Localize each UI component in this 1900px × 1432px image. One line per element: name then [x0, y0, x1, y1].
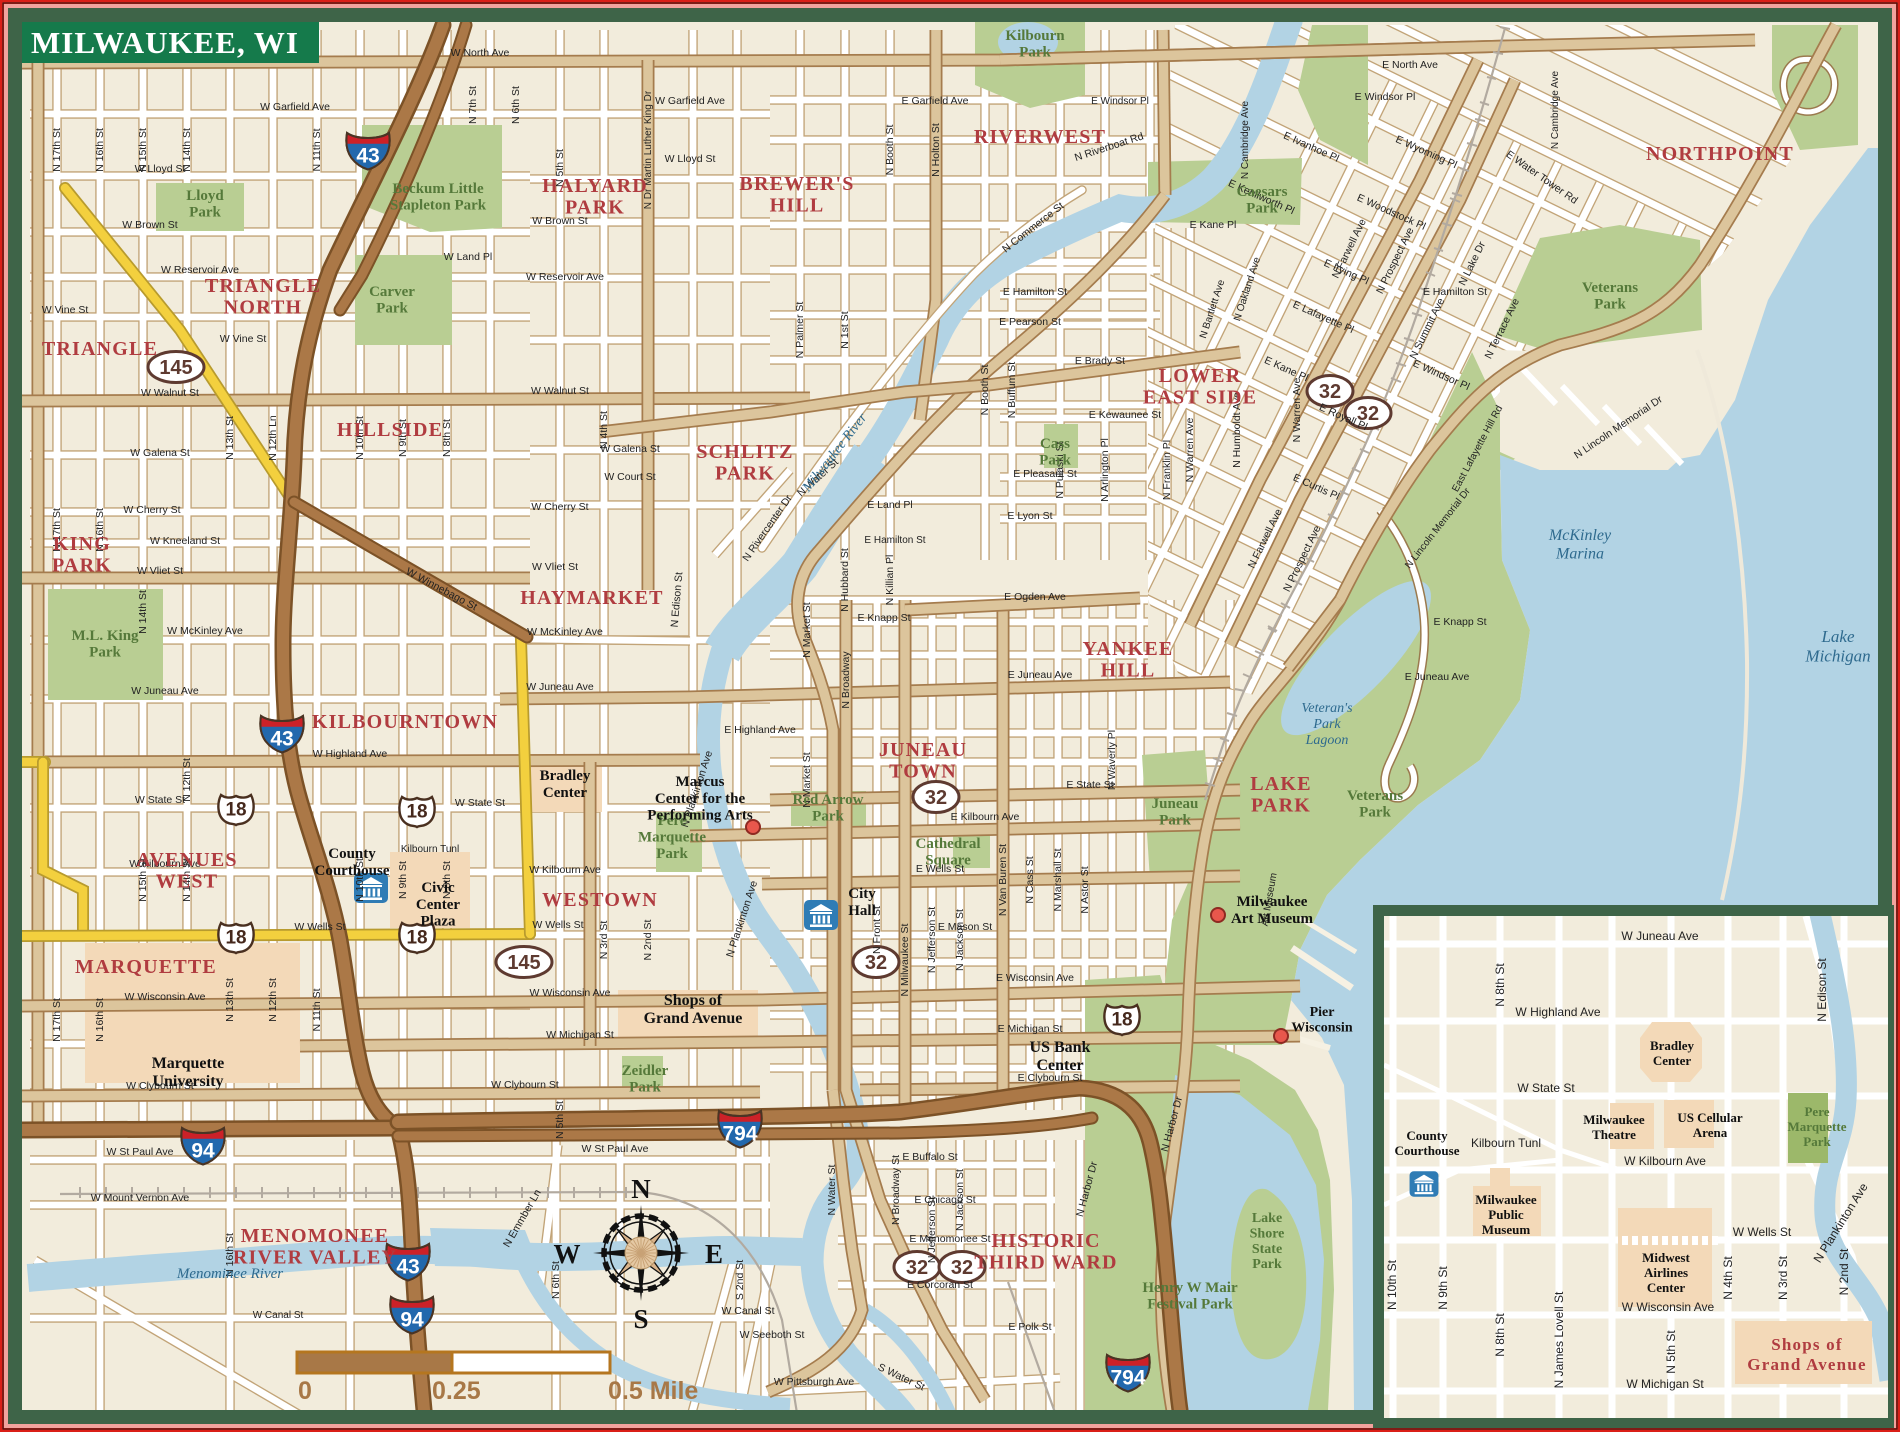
svg-text:NORTH: NORTH	[224, 297, 303, 319]
svg-text:Park: Park	[1359, 805, 1391, 821]
svg-text:W Kilbourn Ave: W Kilbourn Ave	[1624, 1154, 1706, 1168]
svg-text:N 9th St: N 9th St	[1436, 1266, 1450, 1310]
svg-text:N Edison St: N Edison St	[1815, 958, 1829, 1022]
svg-text:W Galena St: W Galena St	[130, 447, 190, 459]
svg-text:E Chicago St: E Chicago St	[914, 1194, 975, 1206]
svg-text:N 8th St: N 8th St	[1493, 963, 1507, 1007]
svg-text:E Ogden Ave: E Ogden Ave	[1004, 591, 1066, 603]
svg-text:N 12th Ln: N 12th Ln	[267, 415, 279, 461]
svg-text:E Windsor Pl: E Windsor Pl	[1355, 91, 1416, 103]
svg-text:145: 145	[159, 357, 192, 379]
svg-text:18: 18	[406, 802, 427, 823]
svg-text:32: 32	[865, 952, 887, 974]
svg-text:Plaza: Plaza	[421, 914, 456, 930]
svg-text:N 11th St: N 11th St	[311, 128, 323, 171]
svg-text:43: 43	[356, 145, 379, 168]
svg-text:E Wisconsin Ave: E Wisconsin Ave	[996, 972, 1074, 984]
svg-text:W Pittsburgh Ave: W Pittsburgh Ave	[774, 1376, 855, 1388]
svg-text:E Hamilton St: E Hamilton St	[864, 535, 925, 546]
svg-text:E Hamilton St: E Hamilton St	[1003, 286, 1067, 298]
svg-text:Milwaukee: Milwaukee	[1475, 1192, 1537, 1207]
svg-text:W State St: W State St	[1517, 1081, 1575, 1095]
svg-text:W Wisconsin Ave: W Wisconsin Ave	[125, 991, 206, 1003]
svg-text:S: S	[633, 1304, 648, 1334]
svg-text:43: 43	[396, 1256, 419, 1279]
svg-text:M.L. King: M.L. King	[71, 628, 139, 644]
svg-text:Park: Park	[1594, 297, 1626, 313]
svg-text:Milwaukee: Milwaukee	[1583, 1112, 1645, 1127]
svg-text:94: 94	[191, 1140, 215, 1163]
svg-text:N Marshall St: N Marshall St	[1052, 848, 1064, 911]
svg-text:W Wells St: W Wells St	[532, 919, 583, 931]
svg-text:W Wells St: W Wells St	[294, 921, 345, 933]
svg-text:W Cherry St: W Cherry St	[123, 504, 180, 516]
svg-text:E Knapp St: E Knapp St	[857, 612, 910, 624]
svg-text:N Jefferson St: N Jefferson St	[926, 907, 938, 973]
svg-text:Shops of: Shops of	[664, 992, 723, 1009]
svg-text:Menominee River: Menominee River	[176, 1266, 283, 1282]
svg-text:HILLSIDE: HILLSIDE	[337, 419, 443, 441]
svg-text:E Windsor Pl: E Windsor Pl	[1091, 96, 1149, 107]
svg-text:Michigan: Michigan	[1804, 647, 1870, 666]
svg-text:N Cass St: N Cass St	[1024, 856, 1036, 903]
svg-text:E Knapp St: E Knapp St	[1433, 616, 1486, 628]
svg-text:N 9th St: N 9th St	[397, 861, 409, 899]
svg-text:Marquette: Marquette	[152, 1055, 225, 1072]
svg-text:E Brady St: E Brady St	[1075, 355, 1125, 367]
svg-text:NORTHPOINT: NORTHPOINT	[1646, 143, 1794, 165]
svg-text:Museum: Museum	[1482, 1222, 1531, 1237]
svg-text:HAYMARKET: HAYMARKET	[520, 587, 663, 609]
svg-text:N Van Buren St: N Van Buren St	[997, 844, 1009, 916]
svg-text:794: 794	[722, 1123, 757, 1146]
svg-text:Festival Park: Festival Park	[1147, 1297, 1233, 1313]
svg-text:E Buffalo St: E Buffalo St	[902, 1151, 957, 1163]
svg-text:Caesars: Caesars	[1237, 184, 1288, 200]
svg-text:E Kilbourn Ave: E Kilbourn Ave	[951, 811, 1020, 823]
svg-text:W Highland Ave: W Highland Ave	[313, 748, 388, 760]
svg-text:TOWN: TOWN	[889, 761, 957, 783]
svg-text:W State St: W State St	[455, 797, 505, 809]
svg-text:WEST: WEST	[156, 871, 219, 893]
svg-text:W St Paul Ave: W St Paul Ave	[582, 1143, 649, 1155]
svg-text:E Kane Pl: E Kane Pl	[1190, 219, 1237, 231]
svg-text:Park: Park	[1246, 201, 1278, 217]
svg-text:N 4th St: N 4th St	[1721, 1256, 1735, 1300]
svg-text:18: 18	[225, 800, 246, 821]
svg-text:E Land Pl: E Land Pl	[867, 499, 913, 511]
svg-text:N Cambridge Ave: N Cambridge Ave	[1240, 100, 1251, 179]
svg-text:E North Ave: E North Ave	[1382, 59, 1438, 71]
svg-text:Bradley: Bradley	[540, 768, 591, 784]
svg-text:E Pleasant St: E Pleasant St	[1013, 468, 1077, 480]
svg-text:KILBOURNTOWN: KILBOURNTOWN	[312, 711, 498, 733]
svg-text:N Holton St: N Holton St	[930, 123, 942, 177]
svg-text:McKinley: McKinley	[1548, 527, 1612, 544]
svg-text:Park: Park	[1039, 453, 1071, 469]
svg-text:PARK: PARK	[715, 463, 775, 485]
svg-text:N Hubbard St: N Hubbard St	[839, 548, 851, 612]
svg-text:E Polk St: E Polk St	[1008, 1321, 1051, 1333]
svg-text:N 10th St: N 10th St	[1385, 1259, 1399, 1310]
svg-text:Pere: Pere	[1804, 1104, 1829, 1119]
svg-text:RIVERWEST: RIVERWEST	[974, 126, 1106, 148]
svg-text:W Cherry St: W Cherry St	[531, 501, 588, 513]
svg-text:N 15th St: N 15th St	[137, 128, 149, 172]
svg-text:145: 145	[507, 952, 540, 974]
svg-text:18: 18	[406, 928, 427, 949]
svg-text:W Kneeland St: W Kneeland St	[150, 535, 220, 547]
svg-text:W St Paul Ave: W St Paul Ave	[107, 1146, 174, 1158]
svg-text:94: 94	[400, 1309, 424, 1332]
svg-text:W Juneau Ave: W Juneau Ave	[1621, 929, 1698, 943]
svg-text:Park: Park	[1019, 45, 1051, 61]
svg-text:N 8th St: N 8th St	[1493, 1313, 1507, 1357]
svg-text:N 5th St: N 5th St	[1664, 1330, 1678, 1374]
svg-text:N 14th St: N 14th St	[137, 590, 149, 634]
svg-text:Park: Park	[812, 809, 844, 825]
svg-text:Park: Park	[189, 205, 221, 221]
svg-text:W Kilbourn Ave: W Kilbourn Ave	[529, 864, 601, 876]
svg-text:N 3rd St: N 3rd St	[1776, 1255, 1790, 1300]
svg-text:32: 32	[906, 1257, 928, 1279]
svg-text:Park: Park	[1252, 1257, 1282, 1272]
svg-text:Lake: Lake	[1252, 1211, 1282, 1226]
svg-text:PARK: PARK	[52, 555, 112, 577]
svg-text:HALYARD: HALYARD	[542, 175, 648, 197]
svg-text:N 13th St: N 13th St	[224, 978, 236, 1022]
svg-text:E Garfield Ave: E Garfield Ave	[902, 95, 969, 107]
svg-text:N Arlington Pl: N Arlington Pl	[1099, 438, 1111, 502]
svg-text:Lagoon: Lagoon	[1305, 733, 1349, 748]
svg-text:N Warren Ave: N Warren Ave	[1291, 377, 1303, 442]
svg-text:N 13th St: N 13th St	[224, 416, 236, 460]
svg-text:KING: KING	[53, 533, 111, 555]
svg-text:Park: Park	[1159, 813, 1191, 829]
svg-text:N Buffum St: N Buffum St	[1006, 362, 1018, 418]
svg-text:W Clybourn St: W Clybourn St	[491, 1079, 559, 1091]
svg-text:Veteran's: Veteran's	[1301, 701, 1353, 716]
svg-text:Airlines: Airlines	[1644, 1265, 1688, 1280]
svg-text:Square: Square	[925, 853, 971, 869]
svg-text:N 2nd St: N 2nd St	[642, 919, 654, 960]
svg-text:Park: Park	[1803, 1134, 1831, 1149]
svg-text:YANKEE: YANKEE	[1083, 638, 1174, 660]
svg-text:N 5th St: N 5th St	[554, 1101, 566, 1139]
svg-text:0.5 Mile: 0.5 Mile	[608, 1377, 698, 1405]
svg-text:W Canal St: W Canal St	[253, 1310, 304, 1321]
svg-text:N 16th St: N 16th St	[94, 128, 106, 172]
svg-text:W Walnut St: W Walnut St	[531, 385, 589, 397]
svg-text:W Juneau Ave: W Juneau Ave	[131, 685, 199, 697]
svg-text:City: City	[848, 886, 876, 902]
svg-text:HILL: HILL	[770, 195, 825, 217]
svg-text:Kilbourn Tunl: Kilbourn Tunl	[1471, 1136, 1541, 1150]
svg-text:N 11th St: N 11th St	[311, 988, 323, 1031]
svg-text:MENOMONEE: MENOMONEE	[241, 1225, 390, 1247]
svg-text:N Jackson St: N Jackson St	[954, 1169, 966, 1231]
svg-text:Midwest: Midwest	[1642, 1250, 1690, 1265]
svg-text:N Booth St: N Booth St	[979, 365, 991, 416]
svg-text:Park: Park	[1312, 717, 1341, 732]
svg-text:Park: Park	[89, 645, 121, 661]
svg-text:W Garfield Ave: W Garfield Ave	[260, 101, 330, 113]
svg-text:Arena: Arena	[1693, 1125, 1728, 1140]
svg-text:W Court St: W Court St	[604, 471, 655, 483]
svg-text:N Palmer St: N Palmer St	[794, 302, 806, 359]
svg-text:State: State	[1252, 1242, 1282, 1257]
svg-text:LAKE: LAKE	[1250, 773, 1311, 795]
svg-text:N Milwaukee St: N Milwaukee St	[899, 923, 911, 996]
svg-text:0.25: 0.25	[432, 1377, 481, 1405]
svg-text:Theatre: Theatre	[1592, 1127, 1636, 1142]
svg-text:Center: Center	[416, 897, 460, 913]
svg-text:N Jefferson St: N Jefferson St	[926, 1197, 938, 1263]
svg-text:N Jackson St: N Jackson St	[954, 909, 966, 971]
svg-text:N: N	[631, 1174, 651, 1204]
svg-text:W Highland Ave: W Highland Ave	[1515, 1005, 1600, 1019]
svg-text:N Booth St: N Booth St	[884, 125, 896, 176]
svg-text:Lloyd: Lloyd	[186, 188, 224, 204]
svg-text:Hall: Hall	[848, 903, 876, 919]
svg-text:Shore: Shore	[1250, 1226, 1285, 1241]
svg-text:N Franklin Pl: N Franklin Pl	[1161, 440, 1173, 500]
svg-text:W Vliet St: W Vliet St	[137, 565, 183, 577]
svg-text:W Vine St: W Vine St	[42, 304, 89, 316]
svg-text:18: 18	[225, 928, 246, 949]
svg-text:N Killian Pl: N Killian Pl	[884, 555, 896, 606]
svg-text:HILL: HILL	[1101, 660, 1156, 682]
svg-text:W Wells St: W Wells St	[1733, 1225, 1792, 1239]
svg-text:Center: Center	[543, 785, 587, 801]
svg-text:N 7th St: N 7th St	[467, 86, 479, 124]
svg-text:Marina: Marina	[1555, 545, 1604, 562]
svg-text:N 12th St: N 12th St	[267, 978, 279, 1022]
svg-text:Park: Park	[629, 1080, 661, 1096]
svg-text:N Broadway: N Broadway	[840, 651, 852, 709]
svg-text:E: E	[705, 1239, 723, 1269]
svg-text:N Broadway St: N Broadway St	[890, 1155, 902, 1225]
svg-text:Marcus: Marcus	[676, 774, 725, 790]
svg-text:E Juneau Ave: E Juneau Ave	[1008, 669, 1073, 681]
svg-text:County: County	[1406, 1128, 1448, 1143]
svg-text:TRIANGLE: TRIANGLE	[205, 275, 321, 297]
svg-text:Park: Park	[656, 846, 688, 862]
svg-text:W Wisconsin Ave: W Wisconsin Ave	[530, 987, 611, 999]
svg-text:Public: Public	[1488, 1207, 1524, 1222]
svg-text:N Warren Ave: N Warren Ave	[1184, 417, 1196, 482]
svg-text:WESTOWN: WESTOWN	[542, 889, 658, 911]
svg-text:Park: Park	[376, 301, 408, 317]
svg-text:Center: Center	[1653, 1053, 1691, 1068]
svg-text:Grand Avenue: Grand Avenue	[1747, 1355, 1866, 1374]
svg-text:N 17th St: N 17th St	[51, 128, 63, 172]
svg-text:Veterans: Veterans	[1582, 280, 1638, 296]
svg-text:Beckum Little: Beckum Little	[392, 181, 484, 197]
svg-text:Grand Avenue: Grand Avenue	[644, 1010, 743, 1027]
svg-text:0: 0	[298, 1377, 312, 1405]
svg-text:N Water St: N Water St	[826, 1164, 838, 1215]
svg-text:E Highland Ave: E Highland Ave	[724, 724, 796, 736]
svg-text:Wisconsin: Wisconsin	[1291, 1021, 1352, 1036]
svg-text:MILWAUKEE, WI: MILWAUKEE, WI	[31, 25, 299, 60]
svg-text:N 4th St: N 4th St	[598, 411, 610, 449]
svg-text:W: W	[554, 1239, 581, 1269]
svg-text:Performing Arts: Performing Arts	[647, 808, 753, 824]
svg-text:W Michigan St: W Michigan St	[1626, 1377, 1704, 1391]
svg-text:TRIANGLE: TRIANGLE	[42, 338, 158, 360]
svg-text:Center: Center	[1647, 1280, 1685, 1295]
svg-text:W McKinley Ave: W McKinley Ave	[527, 626, 603, 638]
svg-text:Red Arrow: Red Arrow	[793, 792, 864, 808]
svg-text:Center for the: Center for the	[655, 791, 746, 807]
svg-text:Courthouse: Courthouse	[314, 863, 389, 879]
svg-text:W Mount Vernon Ave: W Mount Vernon Ave	[91, 1192, 190, 1204]
svg-text:Milwaukee: Milwaukee	[1237, 894, 1308, 910]
svg-text:Courthouse: Courthouse	[1394, 1143, 1459, 1158]
svg-text:E Hamilton St: E Hamilton St	[1423, 286, 1487, 298]
svg-text:LOWER: LOWER	[1159, 365, 1242, 387]
svg-text:W Lloyd St: W Lloyd St	[665, 153, 716, 165]
svg-text:Carver: Carver	[369, 284, 415, 300]
svg-text:N 3rd St: N 3rd St	[598, 921, 610, 960]
svg-text:N Market St: N Market St	[801, 602, 813, 658]
svg-text:N Cambridge Ave: N Cambridge Ave	[1550, 70, 1561, 149]
svg-text:E Menomonee St: E Menomonee St	[909, 1233, 990, 1245]
svg-text:County: County	[328, 846, 376, 862]
svg-text:N 2nd St: N 2nd St	[1837, 1248, 1851, 1295]
svg-text:W Canal St: W Canal St	[721, 1305, 774, 1317]
svg-text:JUNEAU: JUNEAU	[879, 739, 967, 761]
svg-text:Kilbourn: Kilbourn	[1005, 28, 1065, 44]
svg-text:W North Ave: W North Ave	[451, 47, 510, 59]
svg-text:N James Lovell St: N James Lovell St	[1552, 1291, 1566, 1388]
svg-text:SCHLITZ: SCHLITZ	[696, 441, 793, 463]
svg-text:Stapleton Park: Stapleton Park	[390, 198, 487, 214]
svg-text:US Bank: US Bank	[1030, 1039, 1091, 1056]
svg-text:W State St: W State St	[135, 794, 185, 806]
svg-text:W Vliet St: W Vliet St	[532, 561, 578, 573]
svg-text:W Seeboth St: W Seeboth St	[740, 1329, 805, 1341]
svg-text:Cathedral: Cathedral	[916, 836, 981, 852]
svg-text:W Wisconsin Ave: W Wisconsin Ave	[1622, 1300, 1715, 1314]
svg-text:N 14th St: N 14th St	[181, 128, 193, 172]
svg-text:E Corcoran St: E Corcoran St	[907, 1279, 973, 1291]
svg-text:18: 18	[1111, 1010, 1132, 1031]
svg-text:Center: Center	[1036, 1057, 1083, 1074]
svg-text:W Vine St: W Vine St	[220, 333, 267, 345]
svg-text:N 17th St: N 17th St	[51, 998, 63, 1042]
svg-text:E Michigan St: E Michigan St	[998, 1023, 1063, 1035]
svg-text:Shops of: Shops of	[1771, 1335, 1843, 1354]
svg-text:794: 794	[1110, 1367, 1145, 1390]
svg-text:N Waverly Pl: N Waverly Pl	[1106, 730, 1118, 790]
svg-text:HISTORIC: HISTORIC	[991, 1230, 1100, 1252]
svg-text:Zeidler: Zeidler	[622, 1063, 669, 1079]
svg-text:Pier: Pier	[1310, 1005, 1335, 1020]
svg-text:W McKinley Ave: W McKinley Ave	[167, 625, 243, 637]
svg-text:E Kewaunee St: E Kewaunee St	[1089, 409, 1161, 421]
svg-text:THIRD WARD: THIRD WARD	[974, 1252, 1117, 1274]
svg-text:N 1st St: N 1st St	[839, 311, 851, 348]
svg-text:MARQUETTE: MARQUETTE	[75, 956, 217, 978]
svg-text:W Garfield Ave: W Garfield Ave	[655, 95, 725, 107]
svg-text:University: University	[152, 1073, 223, 1090]
svg-text:E Lyon St: E Lyon St	[1007, 510, 1052, 522]
svg-text:Juneau: Juneau	[1152, 796, 1199, 812]
svg-text:Civic: Civic	[421, 880, 455, 896]
svg-text:W Walnut St: W Walnut St	[141, 387, 199, 399]
svg-text:AVENUES: AVENUES	[136, 849, 237, 871]
svg-text:W Michigan St: W Michigan St	[546, 1029, 614, 1041]
svg-text:Bradley: Bradley	[1650, 1038, 1695, 1053]
svg-text:N Astor St: N Astor St	[1079, 866, 1091, 913]
svg-text:E Juneau Ave: E Juneau Ave	[1405, 671, 1470, 683]
svg-text:EAST SIDE: EAST SIDE	[1143, 387, 1257, 409]
svg-text:32: 32	[951, 1257, 973, 1279]
svg-text:PARK: PARK	[1251, 795, 1311, 817]
svg-text:Marquette: Marquette	[1788, 1119, 1847, 1134]
svg-text:E Pearson St: E Pearson St	[999, 316, 1061, 328]
svg-text:Marquette: Marquette	[638, 830, 706, 846]
svg-text:32: 32	[1319, 381, 1341, 403]
svg-text:Kilbourn Tunl: Kilbourn Tunl	[401, 844, 459, 855]
svg-text:S 2nd St: S 2nd St	[734, 1260, 746, 1300]
svg-text:43: 43	[270, 728, 293, 751]
svg-text:Art Museum: Art Museum	[1231, 911, 1314, 927]
svg-text:W Brown St: W Brown St	[122, 219, 178, 231]
svg-text:N 12th St: N 12th St	[181, 758, 193, 802]
svg-text:Cass: Cass	[1040, 436, 1070, 452]
svg-text:Veterans: Veterans	[1347, 788, 1403, 804]
svg-text:N 6th St: N 6th St	[510, 86, 522, 124]
svg-text:W Land Pl: W Land Pl	[444, 251, 492, 263]
svg-text:BREWER'S: BREWER'S	[739, 173, 854, 195]
svg-text:W Reservoir Ave: W Reservoir Ave	[526, 271, 604, 283]
svg-text:32: 32	[925, 787, 947, 809]
svg-text:N 16th St: N 16th St	[94, 998, 106, 1042]
svg-text:Henry W Mair: Henry W Mair	[1142, 1280, 1238, 1296]
svg-text:Lake: Lake	[1820, 627, 1855, 646]
svg-text:W Juneau Ave: W Juneau Ave	[526, 681, 594, 693]
svg-text:US Cellular: US Cellular	[1677, 1110, 1743, 1125]
svg-text:PARK: PARK	[565, 197, 625, 219]
